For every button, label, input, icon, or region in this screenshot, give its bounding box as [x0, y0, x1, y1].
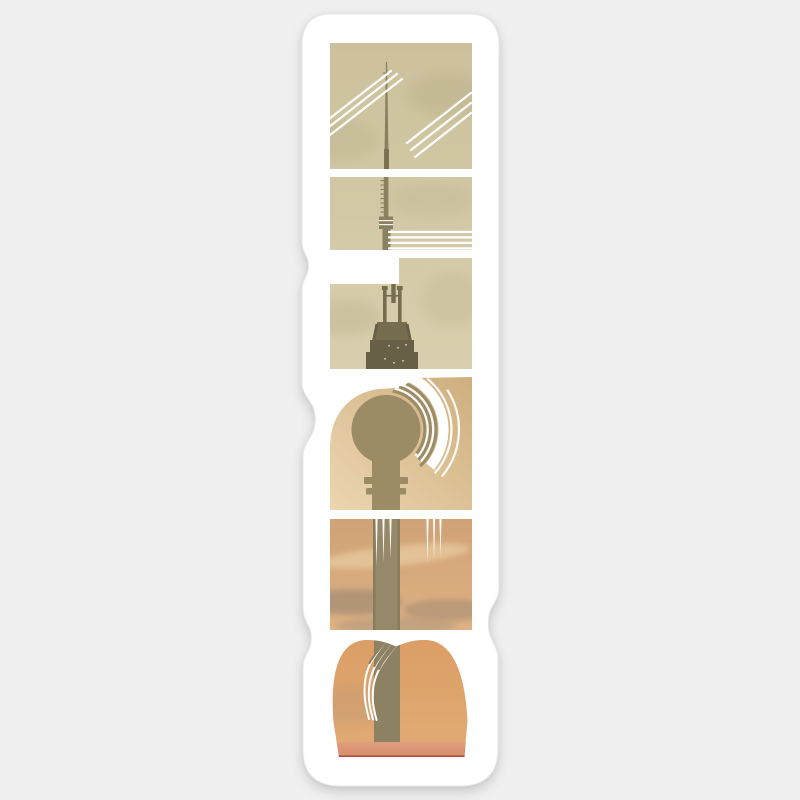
collar-slit — [379, 224, 393, 225]
berlin-tv-tower-sticker — [0, 0, 800, 800]
antenna-collar — [379, 217, 393, 230]
letter-block-e — [302, 519, 493, 635]
product-photo-stage — [0, 0, 800, 800]
neck-flange-ring — [364, 477, 408, 484]
horizon-band — [330, 742, 473, 757]
shaft-shade-edge — [373, 519, 376, 630]
neck-flange-ring — [366, 488, 406, 495]
antenna-base — [384, 149, 389, 169]
letter-block-i — [330, 177, 477, 250]
letter-block-b — [318, 639, 473, 758]
tower-sphere — [352, 395, 421, 464]
shaft-shade-edge — [398, 519, 401, 630]
collar-slit — [379, 220, 393, 221]
cloud — [387, 182, 477, 218]
